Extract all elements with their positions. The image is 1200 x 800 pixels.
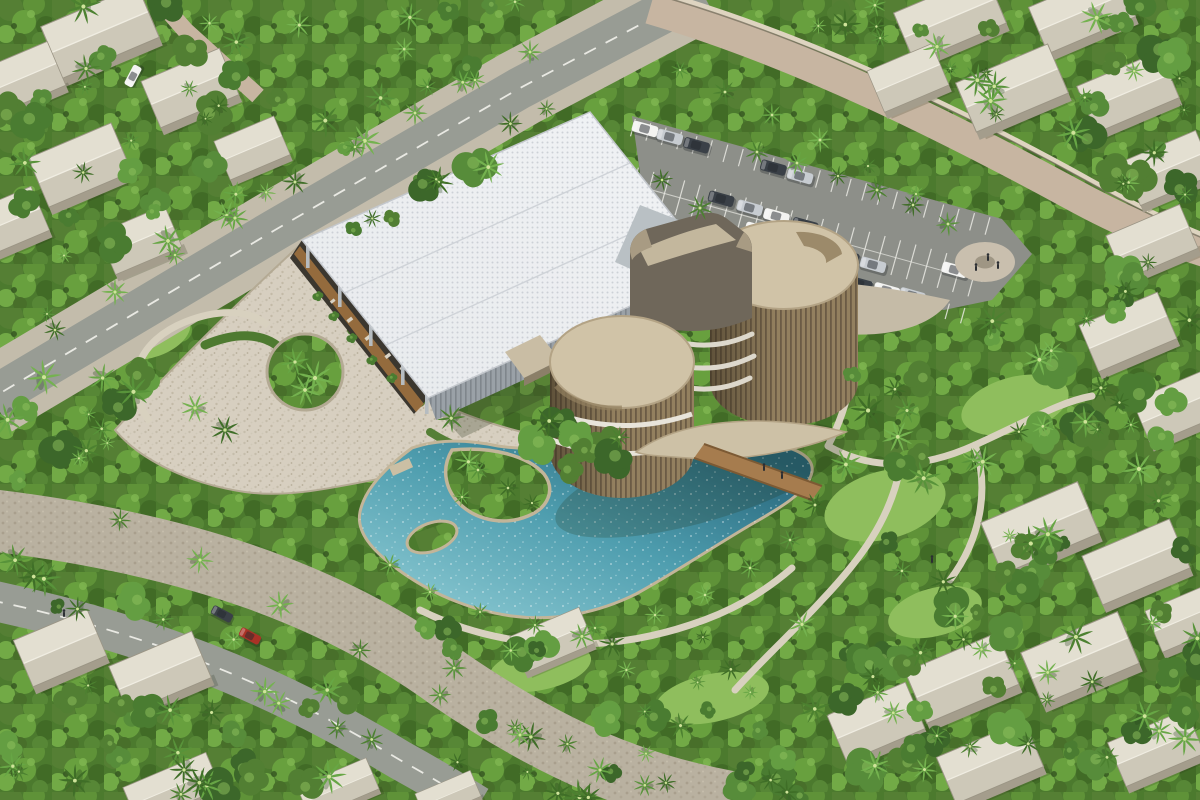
plaza-tree-island [267, 334, 343, 410]
drop-off-island [975, 256, 995, 269]
person [987, 253, 990, 261]
person [63, 609, 66, 617]
front-tower-roof [550, 316, 694, 408]
person [931, 555, 934, 563]
person [975, 263, 978, 271]
person [763, 463, 766, 471]
aerial-rendering [0, 0, 1200, 800]
person [781, 471, 784, 479]
person [997, 261, 1000, 269]
rendering-stage [0, 0, 1200, 800]
sail-body [630, 213, 752, 331]
